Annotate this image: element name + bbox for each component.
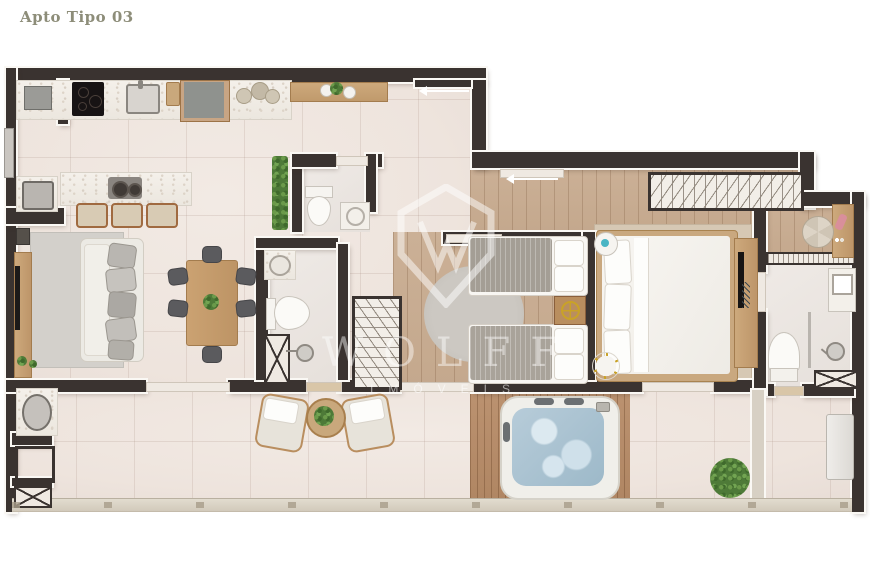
floor-plant	[29, 360, 37, 368]
door-threshold	[774, 386, 804, 396]
wall	[292, 154, 336, 167]
wall	[472, 152, 814, 168]
sofa-cushion	[106, 242, 137, 270]
kitchen-sink	[126, 84, 160, 114]
bar-stool	[111, 203, 143, 228]
terrace-bench	[826, 414, 854, 480]
window	[4, 128, 14, 178]
railing-posts	[12, 502, 852, 508]
ensuite-toilet-tank	[770, 368, 798, 382]
duvet-fold	[634, 238, 649, 372]
floorplan-page: Apto Tipo 03	[0, 0, 870, 580]
ensuite-toilet	[768, 332, 800, 372]
shower-partition	[808, 312, 811, 368]
bar-stool	[146, 203, 178, 228]
table-centerpiece	[203, 294, 219, 310]
bed-pillow	[603, 284, 632, 331]
ensuite-sink-bowl	[832, 274, 853, 295]
dining-chair	[202, 346, 222, 363]
plate	[343, 86, 356, 99]
hot-tub-headrest	[534, 398, 554, 405]
cutting-board	[166, 82, 180, 106]
glass-door	[146, 382, 230, 392]
dish	[236, 88, 252, 104]
cables	[742, 282, 750, 308]
duct-shaft	[814, 370, 858, 389]
barbecue-grill	[15, 446, 55, 483]
door-leaf	[336, 156, 368, 166]
duct-shaft	[264, 334, 290, 384]
hot-tub-headrest	[564, 398, 584, 405]
hot-tub-control	[596, 402, 610, 412]
dining-chair	[167, 267, 189, 287]
page-title: Apto Tipo 03	[20, 8, 134, 26]
terrace-plant	[710, 458, 750, 498]
service-sink	[22, 394, 52, 431]
bathroom-sink-bowl	[269, 255, 291, 276]
cooktop-burner	[78, 102, 87, 111]
floor-plant	[17, 356, 27, 366]
island-burner	[112, 181, 129, 198]
wall	[256, 238, 338, 248]
prep-sink	[22, 181, 54, 210]
sofa-cushion	[107, 291, 137, 319]
refrigerator-top	[184, 82, 224, 118]
plant-pot	[330, 82, 343, 95]
pouf	[802, 216, 834, 248]
single-bed-duvet	[470, 238, 552, 292]
bed-pillow	[554, 266, 584, 292]
terrace-pillar	[752, 390, 764, 500]
nightstand-decor	[561, 301, 580, 320]
cooktop-burner	[78, 87, 89, 98]
faucet	[138, 80, 143, 89]
watermark-brand: WOLFF	[290, 330, 590, 376]
side-table-plant	[314, 406, 334, 426]
glass-door	[642, 382, 714, 392]
wardrobe	[648, 172, 804, 211]
tv	[15, 266, 20, 330]
cooktop-burner	[89, 95, 102, 108]
vertical-garden	[272, 156, 288, 230]
island-burner	[128, 183, 142, 197]
vanity-table	[832, 204, 854, 258]
powder-sink-bowl	[346, 207, 365, 226]
hot-tub-water	[512, 408, 604, 486]
entrance-door-arrow	[421, 90, 469, 92]
fan-decor	[592, 352, 620, 380]
hot-tub-headrest	[503, 422, 510, 442]
bar-stool	[76, 203, 108, 228]
wall-control	[16, 228, 30, 245]
ensuite-shower-head	[826, 342, 845, 361]
oven-appliance	[24, 86, 52, 110]
perfume-bottles	[835, 238, 847, 243]
sofa-cushion	[105, 266, 137, 293]
dining-chair	[202, 246, 222, 263]
sofa-cushion	[107, 339, 134, 361]
bed-pillow	[554, 240, 584, 266]
dish	[265, 89, 280, 104]
tray-decor	[601, 239, 609, 247]
hall-door-arrow	[508, 178, 558, 180]
dining-chair	[167, 299, 189, 318]
watermark-tagline: IMÓVEIS	[320, 382, 560, 396]
dining-chair	[235, 267, 257, 287]
dining-chair	[235, 299, 257, 318]
